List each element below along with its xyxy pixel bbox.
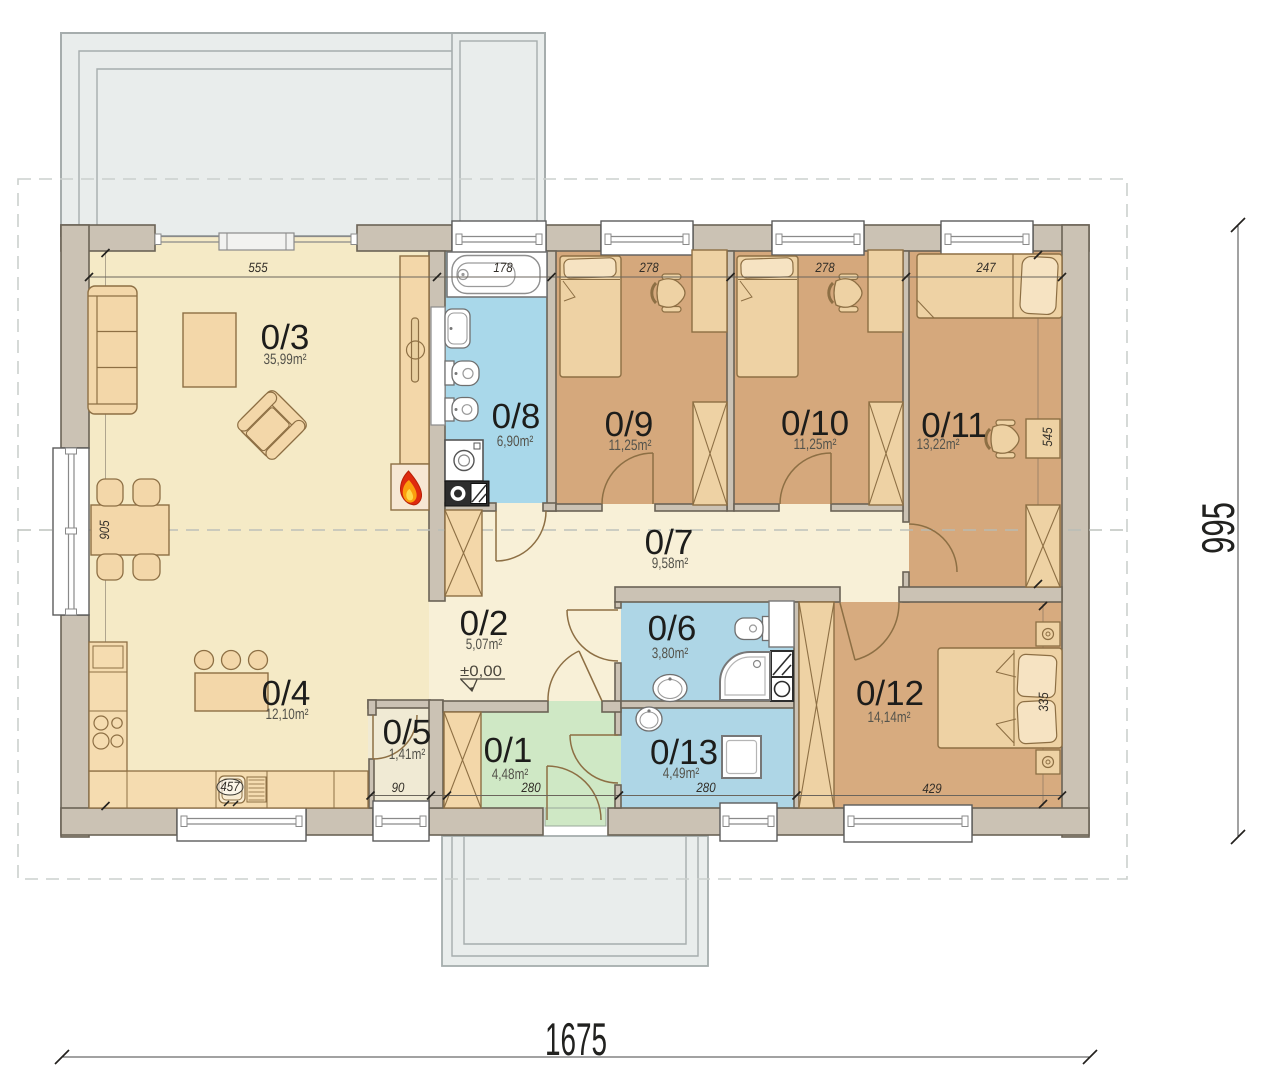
- svg-text:14,14m²: 14,14m²: [868, 709, 911, 726]
- svg-text:±0,00: ±0,00: [460, 663, 502, 680]
- svg-text:1,41m²: 1,41m²: [389, 746, 426, 763]
- svg-text:995: 995: [1192, 502, 1244, 554]
- svg-text:178: 178: [493, 260, 513, 275]
- svg-text:278: 278: [815, 260, 835, 275]
- svg-text:555: 555: [248, 260, 268, 275]
- svg-text:13,22m²: 13,22m²: [917, 436, 960, 453]
- svg-text:0/12: 0/12: [856, 674, 924, 713]
- svg-text:278: 278: [639, 260, 659, 275]
- svg-text:11,25m²: 11,25m²: [609, 437, 652, 454]
- svg-text:0/1: 0/1: [484, 731, 533, 770]
- svg-text:280: 280: [696, 780, 716, 795]
- svg-text:429: 429: [922, 781, 942, 796]
- svg-text:6,90m²: 6,90m²: [497, 433, 534, 450]
- svg-text:4,48m²: 4,48m²: [492, 766, 529, 783]
- svg-text:457: 457: [220, 779, 240, 794]
- svg-text:5,07m²: 5,07m²: [466, 636, 503, 653]
- svg-text:90: 90: [392, 780, 405, 795]
- svg-text:905: 905: [97, 520, 112, 540]
- svg-text:3,80m²: 3,80m²: [652, 645, 689, 662]
- svg-text:335: 335: [1036, 692, 1051, 712]
- svg-text:11,25m²: 11,25m²: [794, 436, 837, 453]
- svg-text:0/8: 0/8: [492, 397, 541, 436]
- svg-text:9,58m²: 9,58m²: [652, 555, 689, 572]
- svg-text:35,99m²: 35,99m²: [264, 351, 307, 368]
- svg-text:12,10m²: 12,10m²: [266, 706, 309, 723]
- svg-text:1675: 1675: [545, 1013, 607, 1065]
- svg-text:4,49m²: 4,49m²: [663, 765, 700, 782]
- svg-text:247: 247: [976, 260, 996, 275]
- svg-text:545: 545: [1040, 427, 1055, 447]
- svg-text:0/6: 0/6: [648, 609, 697, 648]
